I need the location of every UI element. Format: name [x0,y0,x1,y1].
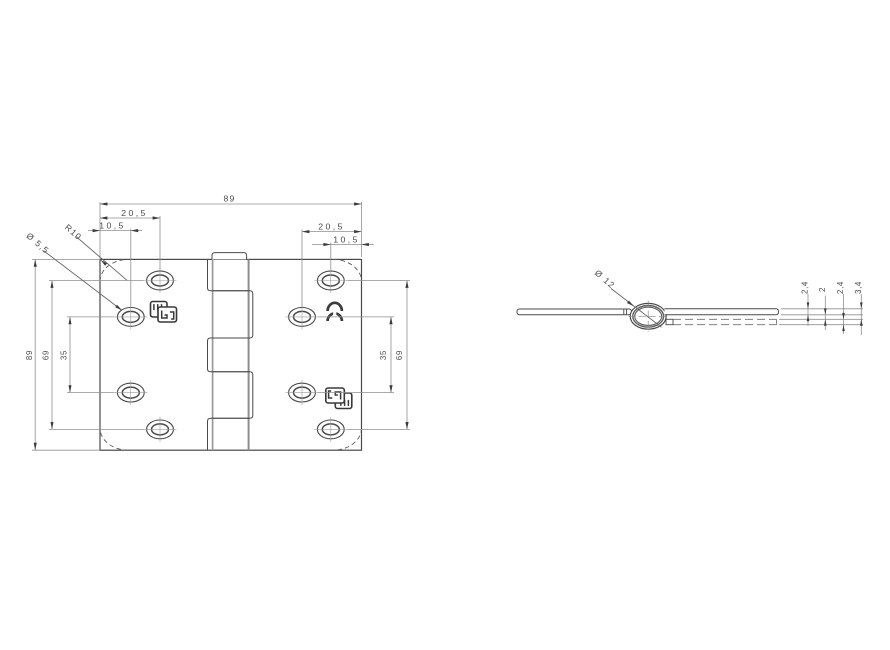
svg-text:89: 89 [25,350,34,360]
svg-text:10,5: 10,5 [99,220,126,230]
svg-text:20,5: 20,5 [121,208,148,218]
svg-text:20,5: 20,5 [318,221,345,231]
svg-text:2: 2 [818,287,827,292]
svg-text:69: 69 [42,350,51,360]
svg-text:2,4: 2,4 [801,281,810,294]
svg-text:69: 69 [395,350,404,360]
svg-text:10,5: 10,5 [333,234,360,244]
svg-text:3,4: 3,4 [854,281,863,294]
svg-text:2,4: 2,4 [836,281,845,294]
svg-text:35: 35 [60,350,69,360]
svg-text:89: 89 [223,194,235,204]
svg-text:35: 35 [379,350,388,360]
